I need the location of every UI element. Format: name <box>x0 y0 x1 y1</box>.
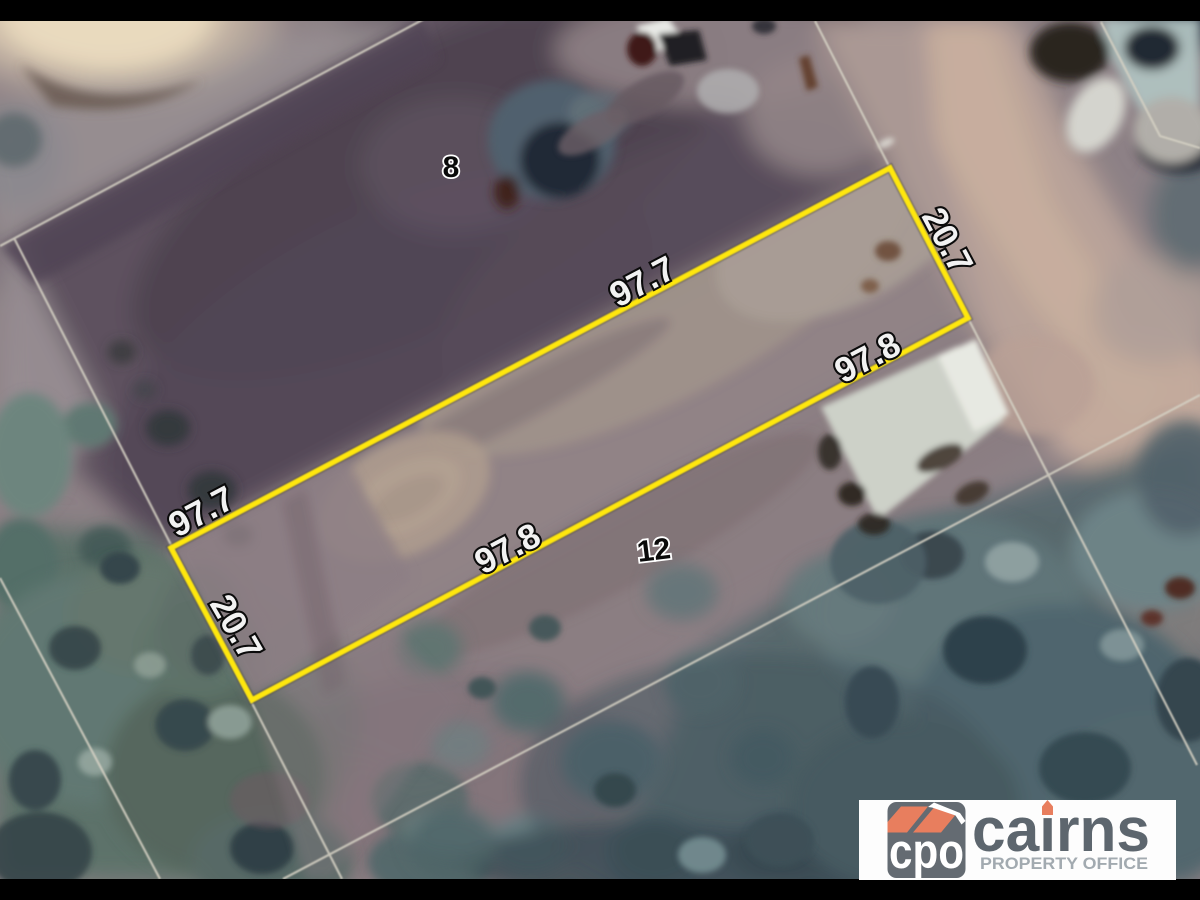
svg-text:PROPERTY OFFICE: PROPERTY OFFICE <box>980 854 1148 873</box>
svg-text:8: 8 <box>443 151 460 184</box>
svg-text:cpo: cpo <box>889 825 964 879</box>
svg-text:12: 12 <box>635 532 672 569</box>
